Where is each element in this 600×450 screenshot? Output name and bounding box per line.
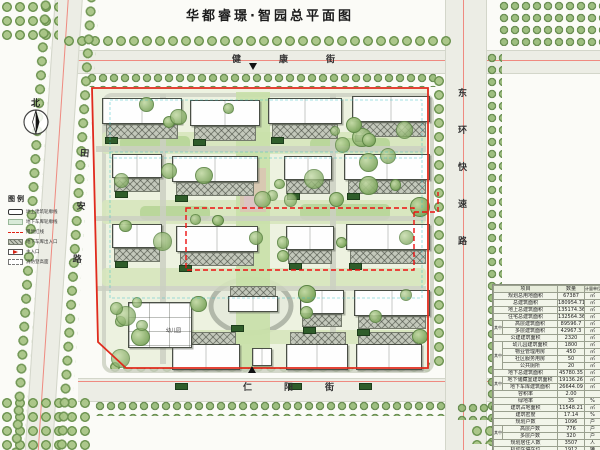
building-number-plate	[175, 383, 188, 390]
table-row: 建筑密度17.14%	[494, 412, 600, 419]
table-value-cell: 89596.7	[558, 321, 585, 328]
legend-item-garage: 地下车库轮廓线	[8, 217, 92, 227]
tree	[195, 167, 212, 184]
table-value-cell: 3507	[558, 440, 585, 447]
building-number-plate	[349, 263, 362, 270]
tree	[212, 215, 223, 226]
legend-panel: 图例 地上建筑轮廓线地下车库轮廓线用地红线地下车库出入口主入口消防登高面	[8, 194, 92, 267]
tree	[190, 296, 206, 312]
table-item-cell: 住宅总建筑面积	[494, 314, 558, 321]
table-unit-cell: ㎡	[585, 370, 600, 377]
table-unit-cell: ㎡	[585, 293, 600, 300]
legend-label: 主入口	[26, 249, 40, 255]
redline-swatch-icon	[8, 232, 23, 233]
table-row: 总建筑面积180954.71㎡	[494, 300, 600, 307]
table-row: 规划居住人数3507人	[494, 440, 600, 447]
table-row: 机动车停车位1912辆	[494, 447, 600, 450]
table-item-cell: 高层户数	[503, 426, 558, 433]
residential-building	[354, 290, 430, 316]
table-value-cell: 776	[558, 426, 585, 433]
table-item-cell: 地上总建筑面积	[494, 307, 558, 314]
legend-item-entry: 主入口	[8, 247, 92, 257]
residential-building	[172, 156, 258, 182]
table-value-cell: 42967.3	[558, 328, 585, 335]
drawing-title: 华都睿璟·智园总平面图	[70, 5, 470, 24]
tree	[298, 285, 315, 302]
legend-items: 地上建筑轮廓线地下车库轮廓线用地红线地下车库出入口主入口消防登高面	[8, 207, 92, 267]
tree	[336, 237, 347, 248]
table-row: 容积率2.00	[494, 391, 600, 398]
street-name-top: 健康街	[232, 52, 373, 65]
table-item-cell: 规划总用地面积	[494, 293, 558, 300]
legend-label: 地下车库出入口	[26, 239, 58, 245]
tree	[277, 250, 289, 262]
tree	[346, 117, 362, 133]
tree	[410, 197, 429, 216]
building-number-plate	[193, 139, 206, 146]
table-item-cell: 地下车库建筑面积	[503, 384, 558, 391]
table-header-cell: 计量单位	[585, 286, 600, 293]
residential-building	[286, 226, 334, 250]
table-item-cell: 总建筑面积	[494, 300, 558, 307]
building-number-plate	[289, 263, 302, 270]
table-row: 规划户数1096户	[494, 419, 600, 426]
table-row: 住宅总建筑面积132564.36㎡	[494, 314, 600, 321]
building-number-plate	[271, 137, 284, 144]
tree	[139, 97, 154, 112]
table-header-row: 项目数量计量单位	[494, 286, 600, 293]
table-item-cell: 多层户数	[503, 433, 558, 440]
ramp-swatch-icon	[8, 239, 23, 245]
table-row: 地下车库建筑面积26644.09㎡	[494, 384, 600, 391]
tree	[369, 310, 382, 323]
table-value-cell: 1096	[558, 419, 585, 426]
table-unit-cell: ㎡	[585, 300, 600, 307]
table-item-cell: 规划户数	[494, 419, 558, 426]
tree	[359, 176, 377, 194]
tree	[359, 153, 378, 172]
table-unit-cell: ㎡	[585, 349, 600, 356]
table-item-cell: 物业管理用房	[503, 349, 558, 356]
table-unit-cell: 户	[585, 419, 600, 426]
table-unit-cell	[585, 391, 600, 398]
table-row: 其中幼儿园建筑面积1800㎡	[494, 342, 600, 349]
garage-ramp-hatch	[288, 250, 332, 264]
table-value-cell: 135174.36	[558, 307, 585, 314]
table-row: 地上总建筑面积135174.36㎡	[494, 307, 600, 314]
table-value-cell: 320	[558, 433, 585, 440]
table-item-cell: 建筑占地面积	[494, 405, 558, 412]
table-value-cell: 1912	[558, 447, 585, 450]
legend-label: 地上建筑轮廓线	[26, 209, 58, 215]
table-value-cell: 50	[558, 356, 585, 363]
table-value-cell: 17.14	[558, 412, 585, 419]
table-item-cell: 地下储藏室建筑面积	[503, 377, 558, 384]
table-value-cell: 1800	[558, 342, 585, 349]
residential-building	[356, 344, 422, 370]
table-unit-cell: ㎡	[585, 335, 600, 342]
building-number-plate	[347, 193, 360, 200]
table-item-cell: 公建建筑面积	[494, 335, 558, 342]
tree	[153, 232, 172, 251]
building-number-plate	[115, 261, 128, 268]
table-value-cell: 2.00	[558, 391, 585, 398]
table-row: 绿地率35%	[494, 398, 600, 405]
table-value-cell: 180954.71	[558, 300, 585, 307]
legend-item-ramp: 地下车库出入口	[8, 237, 92, 247]
tree	[380, 148, 396, 164]
garage-ramp-hatch	[114, 248, 160, 262]
table-unit-cell: %	[585, 398, 600, 405]
garage-ramp-hatch	[176, 182, 254, 196]
table-unit-cell: ㎡	[585, 405, 600, 412]
table-group-cell: 其中	[494, 426, 503, 440]
tree-row	[86, 72, 436, 87]
table-value-cell: 11548.21	[558, 405, 585, 412]
table-row: 其中高层户数776户	[494, 426, 600, 433]
tree	[300, 306, 313, 319]
garage-ramp-hatch	[350, 250, 426, 264]
table-unit-cell: 辆	[585, 447, 600, 450]
table-item-cell: 幼儿园建筑面积	[503, 342, 558, 349]
table-item-cell: 容积率	[494, 391, 558, 398]
tree	[114, 173, 129, 188]
legend-label: 用地红线	[26, 229, 44, 235]
garage-ramp-hatch	[180, 252, 254, 266]
residential-building	[252, 348, 272, 366]
tree	[190, 214, 201, 225]
table-row: 公建建筑面积2320㎡	[494, 335, 600, 342]
residential-building	[228, 296, 278, 312]
table-unit-cell: ㎡	[585, 377, 600, 384]
table-value-cell: 26644.09	[558, 384, 585, 391]
table-header-cell: 项目	[494, 286, 558, 293]
tree	[119, 220, 131, 232]
table-item-cell: 建筑密度	[494, 412, 558, 419]
table-row: 多层建筑面积42967.3㎡	[494, 328, 600, 335]
table-item-cell: 地下总建筑面积	[494, 370, 558, 377]
garage-swatch-icon	[8, 219, 23, 225]
building-number-plate	[231, 325, 244, 332]
kindergarten-label: 幼儿园	[166, 329, 181, 334]
building-number-plate	[357, 329, 370, 336]
table-row: 规划总用地面积67387㎡	[494, 293, 600, 300]
blueprint-page: 幼儿园 华都睿璟·智园总平面图 健康街 仁阳街 东环快速路 田安路 北 图例 地…	[0, 0, 600, 450]
legend-item-outline: 地上建筑轮廓线	[8, 207, 92, 217]
table-unit-cell: ㎡	[585, 342, 600, 349]
table-value-cell: 35	[558, 398, 585, 405]
path-horizontal	[96, 146, 426, 152]
table-item-cell: 高层建筑面积	[503, 321, 558, 328]
tree	[412, 329, 428, 345]
tree	[136, 320, 147, 331]
building-number-plate	[175, 195, 188, 202]
tree-row	[94, 400, 446, 416]
fire-swatch-icon	[8, 259, 23, 265]
table-unit-cell: ㎡	[585, 363, 600, 370]
building-number-plate	[179, 265, 192, 272]
building-number-plate	[105, 137, 118, 144]
table-unit-cell: ㎡	[585, 307, 600, 314]
residential-building	[346, 224, 430, 250]
street-name-bottom: 仁阳街	[243, 380, 366, 393]
indicator-table: 项目数量计量单位规划总用地面积67387㎡总建筑面积180954.71㎡地上总建…	[492, 284, 600, 450]
table-value-cell: 20	[558, 363, 585, 370]
table-unit-cell: 户	[585, 433, 600, 440]
tree	[110, 302, 123, 315]
table-item-cell: 绿地率	[494, 398, 558, 405]
table-value-cell: 67387	[558, 293, 585, 300]
table-row: 其中高层建筑面积89596.7㎡	[494, 321, 600, 328]
outline-swatch-icon	[8, 209, 23, 215]
tree	[170, 109, 186, 125]
table-unit-cell: 户	[585, 426, 600, 433]
tree	[362, 133, 376, 147]
tree	[284, 193, 298, 207]
table-row: 公共厕所20㎡	[494, 363, 600, 370]
table-row: 多层户数320户	[494, 433, 600, 440]
table-item-cell: 公共厕所	[503, 363, 558, 370]
path-horizontal	[96, 216, 426, 221]
table-unit-cell: ㎡	[585, 356, 600, 363]
table-value-cell: 450	[558, 349, 585, 356]
table-header-cell: 数量	[558, 286, 585, 293]
table-row: 地下总建筑面积45780.35㎡	[494, 370, 600, 377]
residential-building	[352, 96, 430, 122]
entry-swatch-icon	[8, 249, 23, 255]
tree	[277, 236, 289, 248]
street-name-right: 东环快速路	[455, 88, 468, 273]
legend-item-fire: 消防登高面	[8, 257, 92, 267]
tree-row	[498, 0, 600, 46]
table-row: 物业管理用房450㎡	[494, 349, 600, 356]
residential-building	[268, 98, 342, 124]
residential-building	[176, 226, 258, 252]
table-row: 其中地下储藏室建筑面积19136.26㎡	[494, 377, 600, 384]
table-unit-cell: ㎡	[585, 314, 600, 321]
table-value-cell: 19136.26	[558, 377, 585, 384]
table-row: 建筑占地面积11548.21㎡	[494, 405, 600, 412]
tree	[111, 349, 130, 368]
table-value-cell: 2320	[558, 335, 585, 342]
building-number-plate	[115, 191, 128, 198]
table-item-cell: 机动车停车位	[494, 447, 558, 450]
table-unit-cell: ㎡	[585, 384, 600, 391]
table-item-cell: 社区服务用房	[503, 356, 558, 363]
tree-row	[432, 74, 447, 370]
legend-title: 图例	[8, 194, 92, 204]
table-group-cell: 其中	[494, 342, 503, 370]
legend-label: 地下车库轮廓线	[26, 219, 58, 225]
legend-label: 消防登高面	[26, 259, 49, 265]
table-item-cell: 规划居住人数	[494, 440, 558, 447]
table-value-cell: 45780.35	[558, 370, 585, 377]
table-item-cell: 多层建筑面积	[503, 328, 558, 335]
table-group-cell: 其中	[494, 377, 503, 391]
tree-row	[62, 34, 454, 49]
table-unit-cell: ㎡	[585, 321, 600, 328]
table-row: 社区服务用房50㎡	[494, 356, 600, 363]
tree	[396, 121, 413, 138]
residential-building	[286, 344, 348, 370]
legend-item-redline: 用地红线	[8, 227, 92, 237]
table-unit-cell: ㎡	[585, 328, 600, 335]
table-unit-cell: %	[585, 412, 600, 419]
tree	[304, 169, 323, 188]
north-label: 北	[31, 96, 40, 109]
table-value-cell: 132564.36	[558, 314, 585, 321]
tree	[400, 289, 412, 301]
building-number-plate	[303, 327, 316, 334]
table-group-cell: 其中	[494, 321, 503, 335]
tree	[223, 103, 234, 114]
table-unit-cell: 人	[585, 440, 600, 447]
tree	[390, 179, 401, 190]
